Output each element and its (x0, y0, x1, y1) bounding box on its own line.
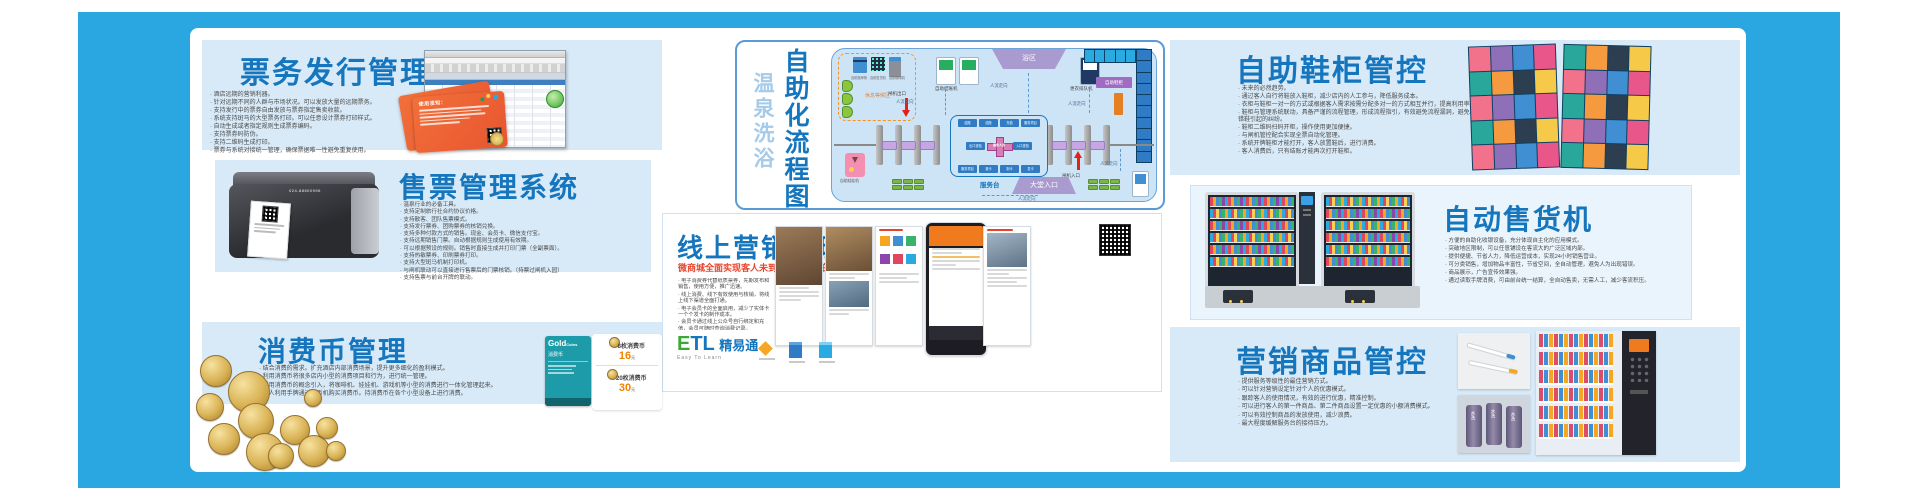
swabs-photo (1458, 333, 1530, 389)
service-terminal: 出口查验 (966, 142, 985, 150)
product-tile (893, 254, 903, 264)
locker-cell (1629, 47, 1650, 71)
window-toolbar (425, 64, 565, 73)
locker-cell (1493, 120, 1515, 144)
bottle-row (1210, 245, 1294, 255)
card-divider (548, 361, 588, 362)
text-bar (779, 295, 819, 297)
vending-cabinet (1321, 192, 1415, 290)
flow-diagram: 自助按摩椅自助售货机自助咖啡机 休息等候区 自助结账机 浴区 更衣排队机 自助鞋… (831, 48, 1157, 202)
seat (914, 179, 924, 184)
bullet-item: · 鞋柜二维码扫码开柜，操作使用更加便捷。 (1238, 125, 1490, 132)
service-box-row-mid: 出口查验 服务人员 入口查验 (954, 137, 1044, 155)
gold-coins-card: GoldCoins 消费币 (545, 336, 591, 406)
badge-caption-bar (819, 361, 835, 363)
bullet-item: · 针对远期不同的人群与市场状况。可以发放大量的远期票务。 (210, 100, 422, 107)
bottle-row (1210, 221, 1294, 231)
bottle-row (1326, 257, 1410, 267)
logo-letter: E (677, 333, 690, 355)
locker-cell (1627, 120, 1648, 144)
panel-online-marketing: 线上营销管理 微商城全面实现客人未到、销售先行的理念 · 电子消费券代替纸质票券… (662, 213, 1162, 392)
swab-stick (1468, 360, 1518, 375)
bottle-row (1210, 209, 1294, 219)
wall-line (834, 144, 878, 146)
bullet-list: · 未来的必然趋势。· 通过客人自行将鞋放入鞋柜，减少店内的人工参与，降低服务成… (1238, 86, 1490, 157)
locker-cell (1516, 144, 1538, 168)
locker-cell (1105, 50, 1114, 62)
bench-seat (842, 93, 853, 105)
checkout-kiosk-icon (959, 57, 979, 85)
service-terminal: 服务项目 (958, 165, 977, 173)
price-value: 30 (619, 382, 631, 394)
etl-logo: ETL 精易通 Easy To Learn (677, 334, 758, 361)
locker-cell (1536, 94, 1558, 118)
product-tile (906, 236, 916, 246)
bullet-item: · 通过读取手牌消费，可由前台统一结算，全自动售卖，无需人工，减少客流积压。 (1445, 278, 1683, 285)
badge (759, 342, 775, 363)
fridge-vending-photo (1536, 331, 1656, 455)
text-bar (932, 252, 962, 254)
bullet-item: · 支持多种付款方式的销售。现金、会员卡、微信支付宝。 (400, 231, 646, 237)
bullet-item: · 电子消费券代替纸质票券，先期发布和销售，使用方便，推广迅速。 (678, 278, 774, 291)
printer-photo: 024-88600996 (223, 160, 399, 270)
bottle-row (1326, 221, 1410, 231)
flow-line (1120, 149, 1121, 171)
flow-title-bold: 自助化流程图 (777, 48, 813, 210)
locker-cell (1564, 45, 1585, 69)
coin-badge-icon (490, 132, 504, 146)
gold-coin-icon (268, 443, 294, 469)
bullet-list: · 酒店远期的营销利器。· 针对远期不同的人群与市场状况。可以发放大量的远期票务… (210, 92, 422, 156)
towel-rolls-photo: 水洗 水洗 水洗 (1458, 395, 1530, 453)
bullet-item: · 未来的必然趋势。 (1238, 86, 1490, 93)
machine-label: 自助咖啡机 (889, 75, 905, 80)
service-terminal: 充值 (1000, 119, 1019, 127)
seat (903, 179, 913, 184)
bullet-item: · 会员卡通过线上公众号自行绑定和充值，会员可随时查询消费记录。 (678, 319, 774, 330)
hatch-dot (1351, 300, 1354, 303)
app-screenshot (875, 226, 923, 346)
card-text-line (420, 121, 460, 125)
bullet-item: · 支持二维码生成打印。 (210, 140, 422, 147)
service-terminal: 制卡 (1000, 165, 1019, 173)
product-grid (876, 233, 922, 271)
bottle-row (1326, 197, 1410, 207)
shoe-locker-strip-h (1084, 49, 1136, 63)
text-bar (932, 260, 980, 262)
locker-cell (1585, 70, 1606, 94)
bullet-item: · 自动生成或者指定规则生成票券编码。 (210, 124, 422, 131)
text-bar (879, 277, 907, 279)
text-bar (779, 291, 819, 293)
entry-arrow-icon (1074, 151, 1082, 170)
seat (1088, 185, 1098, 190)
price-item: 20枚消费币 30元 (594, 369, 660, 394)
text-bar (987, 273, 1009, 275)
kiosk-screen (1135, 174, 1146, 184)
rest-machine-labels: 自助按摩椅自助售货机自助咖啡机 (851, 75, 905, 80)
bench-group (892, 179, 924, 190)
text-bar (879, 281, 919, 283)
shelf-row (1539, 334, 1613, 349)
locker-cell (1584, 119, 1605, 143)
coffee-machine-icon (889, 57, 901, 77)
seat (1110, 185, 1120, 190)
bench-icons (842, 80, 853, 119)
app-screenshot (983, 226, 1031, 346)
vending-screen (1301, 196, 1313, 205)
price-value: 16 (619, 350, 631, 362)
flow-direction-label: 人流走向 (1018, 196, 1036, 202)
gate-bar (1071, 141, 1086, 150)
header-bar (987, 229, 1013, 231)
bottle-row (1326, 245, 1410, 255)
ticket-text-line (254, 230, 276, 233)
arrow-head (902, 110, 910, 117)
coin-slot (1303, 209, 1311, 211)
towel-roll: 水洗 (1486, 403, 1502, 445)
header-bar (879, 229, 903, 231)
bullet-item: · 支持发行票券、团购票券的核销兑换。 (400, 224, 646, 230)
bullet-item: · 线上消费、线下有效使用与核销，将线上线下渠道全面打通。 (678, 292, 774, 305)
machine-label: 自助按摩椅 (851, 75, 867, 80)
bullet-item: · 支持热敏票券、印刷票券打印。 (400, 253, 646, 259)
card-text-line (548, 369, 572, 371)
badge-caption-bar (759, 358, 775, 360)
swab-stick (1466, 342, 1515, 361)
dispense-slot (1630, 390, 1648, 394)
panel-goods-control: 营销商品管控 · 提供服务等级性的最佳营销方式。· 可以针对营销设定针对个人的优… (1170, 327, 1740, 462)
product-tile (893, 236, 903, 246)
text-bar (987, 281, 1017, 283)
checkout-label: 自助结账机 (935, 86, 958, 92)
gate-bar (901, 141, 916, 150)
vending-control-column (1299, 192, 1315, 284)
bullet-item: · 衣柜与鞋柜一对一的方式或根据客人需求按需分配多对一的方式相互并行，提高利用率… (1238, 102, 1490, 109)
kiosk-screen (939, 60, 953, 70)
text-bar (987, 285, 1027, 287)
prize-icon (849, 167, 854, 172)
bottle-row (1326, 233, 1410, 243)
service-desk-label: 服务台 (980, 179, 1000, 189)
bench-group (1088, 179, 1120, 190)
fridge-shelves (1536, 334, 1616, 439)
exit-gates (876, 125, 942, 165)
gate-bar (1052, 141, 1067, 150)
locker-cell (1606, 120, 1627, 144)
badge (789, 342, 805, 363)
bullet-item: · 支持售票与前台开牌的联动。 (400, 275, 646, 281)
bullet-list: · 温泉行业的必备工具。· 支持定制旅行社合约协议价格。· 支持散客、团队售票模… (400, 202, 646, 282)
panel-vending: 自动售货机 · 方便的自助化收银设备，充分体现自主化的应用模式。· 突破地区限制… (1190, 185, 1692, 320)
panel-title: 营销商品管控 (1236, 337, 1428, 381)
staff-label: 服务人员 (989, 143, 1009, 147)
bullet-item: · 支持定制旅行社合约协议价格。 (400, 209, 646, 215)
locker-cell (1491, 71, 1513, 95)
bullet-list: · 方便的自助化收银设备，充分体现自主化的应用模式。· 突破地区限制，可以任意铺… (1445, 238, 1683, 286)
seat (914, 185, 924, 190)
seat (892, 185, 902, 190)
gold-coin-icon (196, 393, 224, 421)
bullet-item: · 温泉行业的必备工具。 (400, 202, 646, 208)
bench-seat (842, 80, 853, 92)
shelf-row (1539, 388, 1613, 403)
text-bar (829, 309, 869, 311)
wall-line (1110, 144, 1154, 146)
service-desk-box: 结账结账充值服务项目 出口查验 服务人员 入口查验 服务项目退卡制卡发卡 (950, 115, 1048, 177)
pool-photo (829, 281, 869, 307)
claw-icon (852, 157, 858, 163)
qr-code (1099, 224, 1131, 256)
app-screenshot (775, 226, 823, 346)
seat (1099, 185, 1109, 190)
bullet-item: · 支持发行中的票券自由发放与票券指定售卖收款。 (210, 108, 422, 115)
gold-coin-icon (200, 355, 232, 387)
checkout-kiosk-icon (936, 57, 956, 85)
panel-flow-diagram: 温泉洗浴 自助化流程图 自助按摩椅自助售货机自助咖啡机 休息等候区 自助结账机 … (735, 40, 1165, 210)
seat (903, 185, 913, 190)
flow-line (1089, 89, 1090, 113)
poster-page: { "colors": { "frame": "#2aa7e0", "panel… (0, 0, 1920, 500)
locker-cell (1095, 50, 1104, 62)
seat (892, 179, 902, 184)
locker-cell (1471, 96, 1493, 120)
logo-name: 精易通 (719, 338, 758, 353)
bench-seat (842, 106, 853, 118)
bullet-item: · 系统开牌鞋柜才能打开，客人放置鞋后，进行消费。 (1238, 141, 1490, 148)
gold-coin-icon (208, 423, 240, 455)
logo-tagline: Easy To Learn (677, 355, 758, 361)
locker-cell (1586, 45, 1607, 69)
logo-letters: TL (690, 333, 714, 355)
rest-area-label: 休息等候区 (865, 92, 890, 99)
arrow-head (1074, 151, 1082, 158)
bottle-row (1326, 209, 1410, 219)
ticket-kiosk-icon (1132, 171, 1149, 197)
app-body (929, 248, 983, 326)
text-bar (779, 299, 801, 301)
flow-direction-label: 人流走向 (1100, 161, 1118, 167)
locker-cell (1137, 73, 1151, 83)
service-terminal: 结账 (979, 119, 998, 127)
product-tile (906, 254, 916, 264)
locker-cell (1085, 50, 1094, 62)
app-footer (929, 326, 983, 340)
bath-area: 浴区 (992, 49, 1066, 69)
machine-label: 自助售货机 (870, 75, 886, 80)
staff-cross-icon: 服务人员 (987, 137, 1011, 155)
text-bar (932, 248, 980, 250)
kiosk-screen (962, 60, 976, 70)
bullet-item: · 与闸机联动可以直接进行售票后的门票核销。（持票过闸机入园） (400, 268, 646, 274)
locker-column-icon (1114, 93, 1123, 115)
spa-photo (776, 227, 822, 285)
pickup-hatch (1223, 290, 1253, 303)
vending-machine-photo (1205, 192, 1420, 312)
locker-cell (1605, 144, 1626, 168)
panel-title: 售票管理系统 (399, 166, 579, 206)
bullet-item: · 酒店远期的营销利器。 (210, 92, 422, 99)
locker-cell (1491, 46, 1513, 70)
claw-label: 自助娃娃机 (840, 179, 859, 184)
app-header (929, 226, 983, 246)
bottle-row (1210, 257, 1294, 267)
locker-cell (1606, 95, 1627, 119)
locker-cell (1492, 95, 1514, 119)
gold-card-name: 消费币 (548, 351, 588, 358)
locker-cell (1627, 145, 1648, 169)
bullet-item: · 支持票券码防伪。 (210, 132, 422, 139)
bullet-item: · 突破地区限制，可以任意铺设在客流大的广泛区域内部。 (1445, 246, 1683, 253)
bullet-item: · 可以根据预设的规则。销售时直接生成并打印门票（全副票面）。 (400, 246, 646, 252)
seat (1099, 179, 1109, 184)
vending-cabinet (1205, 192, 1299, 290)
locker-cell (1472, 145, 1494, 169)
locker-cell (1629, 71, 1650, 95)
bullet-item: · 方便的自助化收银设备，充分体现自主化的应用模式。 (1445, 238, 1683, 245)
gold-coin-icon (316, 417, 338, 439)
text-bar (987, 269, 1027, 271)
locker-cell (1537, 118, 1559, 142)
locker-cell (1470, 71, 1492, 95)
bullet-item: · 商品展示，广告宣传效果强。 (1445, 270, 1683, 277)
cube-badge-icon (789, 342, 802, 358)
panel-subtitle: 微商城全面实现客人未到、销售先行的理念 (678, 261, 849, 274)
rest-machines (853, 57, 901, 77)
service-terminal: 发卡 (1021, 165, 1040, 173)
arrow-stem (1077, 158, 1080, 170)
price-item: 8枚消费币 16元 (594, 337, 660, 362)
fridge-control-column (1622, 331, 1656, 455)
gate-bar (1090, 141, 1105, 150)
lobby-entrance: 大堂入口 (1012, 177, 1076, 194)
bullet-item: · 通过客人自行将鞋放入鞋柜，减少店内的人工参与，降低服务成本。 (1238, 94, 1490, 101)
vending-kiosk-icon (871, 57, 885, 71)
panel-title: 自助鞋柜管控 (1236, 46, 1428, 90)
locker-cell (1562, 119, 1583, 143)
swab-tip (1506, 354, 1516, 360)
bullet-item: · 与闸机管控配合实现全票自动化管理。 (1238, 133, 1490, 140)
coins-photo (192, 345, 352, 467)
flow-line (1028, 73, 1029, 113)
flow-direction-label: 人流走向 (990, 83, 1008, 89)
roll-label: 水洗 (1470, 411, 1476, 420)
bullet-item: · 提供便捷、节省人力，降低运营成本，实现24小时销售营业。 (1445, 254, 1683, 261)
panel-title: 自动售货机 (1443, 198, 1593, 238)
fridge-screen (1629, 339, 1649, 352)
locker-cell (1512, 45, 1534, 69)
bullet-item: · 鞋柜与管理系统联动，具备严谨的流程管理，形成流程指引，有效避免流程漏洞，避免… (1238, 110, 1490, 124)
pickup-hatch (1345, 290, 1375, 303)
ticket-text-line (254, 223, 284, 227)
locker-cell (1515, 119, 1537, 143)
printed-ticket (247, 201, 291, 260)
leaf-logo-icon (546, 90, 564, 108)
product-tile (880, 236, 890, 246)
locker-cell (1514, 94, 1536, 118)
bullet-item: · 支持远期销售门票。自动根据规则生成使用有效期。 (400, 238, 646, 244)
bullet-list: · 电子消费券代替纸质票券，先期发布和销售，使用方便，推广迅速。· 线上消费、线… (678, 278, 774, 330)
seat (1110, 179, 1120, 184)
claw-machine-icon (845, 153, 865, 177)
text-bar (987, 277, 1027, 279)
locker-cell (1607, 71, 1628, 95)
text-bar (879, 273, 919, 275)
locker-cell (1494, 144, 1516, 168)
panel-ticket-issue: 票务发行管理系统 · 酒店远期的营销利器。· 针对远期不同的人群与市场状况。可以… (202, 40, 662, 150)
flow-line (945, 89, 946, 115)
product-tile (880, 254, 890, 264)
seat (1088, 179, 1098, 184)
locker-cell (1471, 121, 1493, 145)
text-bar (932, 268, 980, 270)
towel-roll: 水洗 (1506, 406, 1522, 448)
locker-cell (1137, 84, 1151, 94)
text-bar (829, 273, 869, 275)
shelf-row (1539, 352, 1613, 367)
locker-cell (1534, 45, 1556, 69)
bullet-item: · 客人消费后，只有结账才能再次打开鞋柜。 (1238, 149, 1490, 156)
card-text-line (548, 372, 574, 374)
locker-cell (1137, 129, 1151, 139)
locker-cell (1137, 50, 1151, 60)
bullet-item: · 票券与系统对接统一管理，确保票据唯一性避免重复使用。 (210, 148, 422, 155)
gold-coin-icon (304, 389, 322, 407)
app-screenshot (825, 226, 873, 346)
bottle-row (1210, 197, 1294, 207)
locker-cell (1628, 96, 1649, 120)
shelf-row (1539, 424, 1613, 439)
gate-exit-label: 闸机出口 (888, 91, 906, 97)
locker-cell (1137, 61, 1151, 71)
bullet-item: · 支持散客、团队售票模式。 (400, 217, 646, 223)
hatch-dot (1229, 300, 1232, 303)
roll-label: 水洗 (1510, 412, 1516, 421)
gold-coin-icon (326, 441, 346, 461)
shelf-row (1539, 406, 1613, 421)
swab-tip (1508, 368, 1518, 374)
hatch-dot (1362, 300, 1365, 303)
flow-direction-label: 人流走向 (1068, 101, 1086, 107)
bullet-item: · 电子会员卡的全面启用，减少了实体卡一个个发卡的制作成本。 (678, 306, 774, 319)
diamond-badge-icon (758, 341, 773, 356)
cube-badge-icon (819, 342, 832, 358)
locker-cell (1583, 144, 1604, 168)
shelf-row (1539, 370, 1613, 385)
card-footer (545, 398, 591, 406)
ticket-qr-code (262, 206, 279, 223)
text-bar (932, 264, 956, 266)
printer-side-panel (351, 188, 379, 254)
text-bar (829, 313, 849, 315)
flow-title-light: 温泉洗浴 (747, 72, 777, 172)
phone-mockup (925, 222, 987, 356)
locker-cell (1538, 143, 1560, 167)
table-header (425, 73, 565, 80)
locker-cell (1137, 118, 1151, 128)
service-box-row-bottom: 服务项目退卡制卡发卡 (954, 165, 1044, 173)
photo (987, 233, 1027, 267)
roll-label: 水洗 (1490, 409, 1496, 418)
service-terminal: 服务项目 (1021, 119, 1040, 127)
keypad (1629, 356, 1649, 382)
locker-cell (1137, 106, 1151, 116)
printer-phone-number: 024-88600996 (289, 188, 321, 193)
shoe-locker-photo (1468, 44, 1560, 171)
window-titlebar (425, 51, 565, 58)
price-unit: 元 (631, 387, 635, 392)
vending-base (1205, 286, 1420, 308)
